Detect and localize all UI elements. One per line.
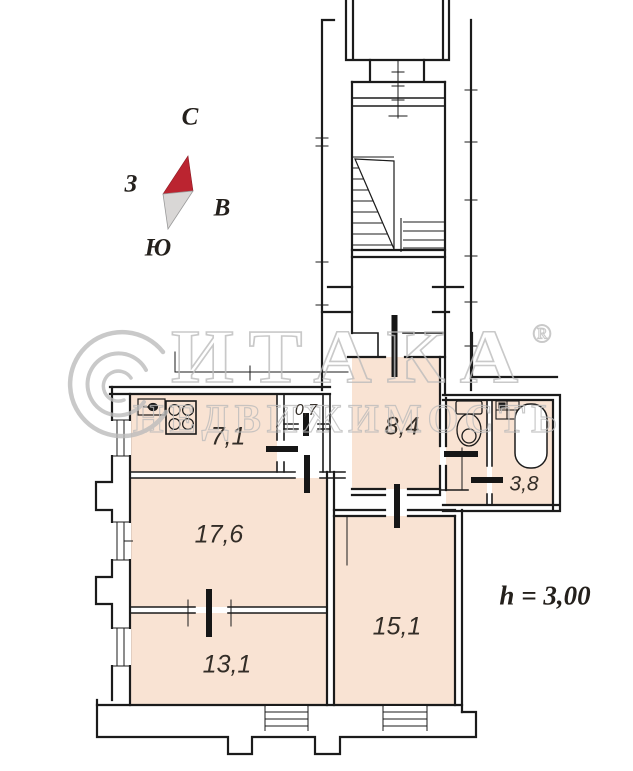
ceiling-height-note: h = 3,00 xyxy=(499,583,590,610)
room-area-label-bathroom: 3,8 xyxy=(509,474,538,495)
door-symbol-room-17-6 xyxy=(304,455,310,493)
compass-needle-icon xyxy=(152,146,200,238)
door-symbol-wc xyxy=(444,451,478,457)
door-symbol-entry xyxy=(392,315,398,377)
room-area-label-hallway: 8,4 xyxy=(385,415,420,440)
door-symbol-kitchen xyxy=(266,446,298,452)
compass-east-label: В xyxy=(214,196,231,221)
door-symbol-room-13-1 xyxy=(206,589,212,637)
room-area-label-15-1: 15,1 xyxy=(373,615,422,640)
window-symbols-bottom xyxy=(265,705,427,735)
stairs-icon xyxy=(352,98,445,252)
bathtub-icon xyxy=(515,404,547,468)
floor-plan-drawing xyxy=(0,0,633,771)
compass-west-label: З xyxy=(125,172,138,197)
door-symbol-bathroom xyxy=(471,477,503,483)
room-area-label-closet: 0,7 xyxy=(295,403,317,419)
stair-run-triangle xyxy=(355,159,394,249)
floor-plan-page: С З В Ю 7,1 0,7 8,4 3,8 17,6 15,1 13,1 h… xyxy=(0,0,633,771)
compass-north-label: С xyxy=(182,105,199,130)
room-fill-15-1 xyxy=(334,516,455,705)
room-area-label-kitchen: 7,1 xyxy=(211,425,246,450)
room-area-label-17-6: 17,6 xyxy=(195,523,244,548)
room-area-label-13-1: 13,1 xyxy=(203,653,252,678)
compass-south-label: Ю xyxy=(145,236,171,261)
door-symbol-room-15-1 xyxy=(394,484,400,528)
